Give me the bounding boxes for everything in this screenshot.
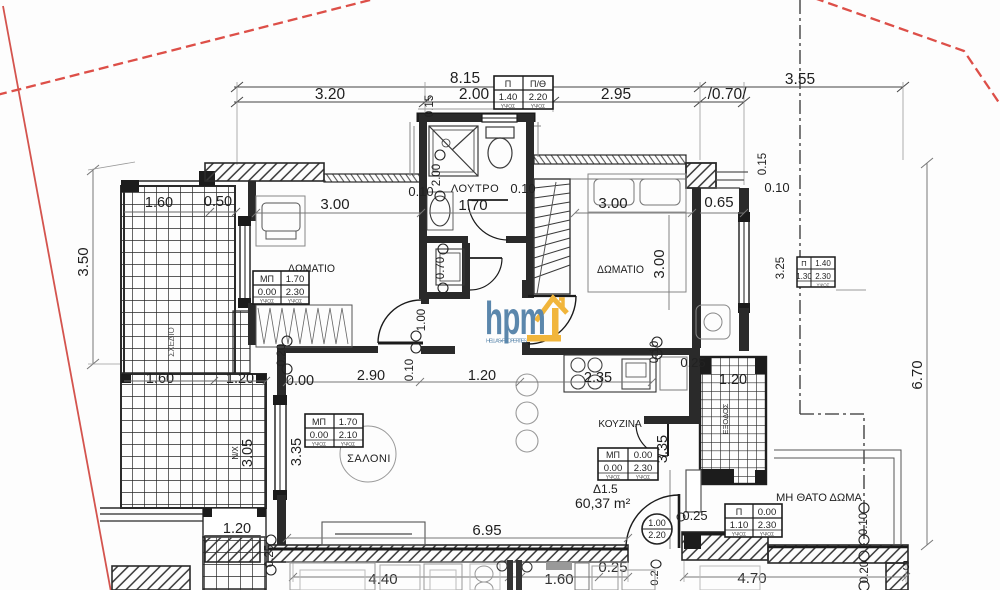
svg-text:1.10: 1.10 — [730, 520, 749, 531]
svg-text:Δ1.5: Δ1.5 — [593, 482, 618, 496]
svg-text:2.95: 2.95 — [601, 86, 631, 103]
svg-text:ΥΨΟΣ: ΥΨΟΣ — [312, 442, 327, 448]
svg-text:ΜП: ΜП — [606, 450, 620, 460]
svg-text:1.20: 1.20 — [226, 371, 254, 387]
svg-text:ΚΟΥΖΙΝΑ: ΚΟΥΖΙΝΑ — [598, 419, 642, 430]
svg-text:0.10: 0.10 — [649, 341, 661, 363]
svg-text:2.00: 2.00 — [431, 164, 443, 186]
svg-text:2.30: 2.30 — [286, 287, 305, 298]
svg-text:Ν/Χ: Ν/Χ — [231, 446, 240, 460]
svg-text:0.10: 0.10 — [764, 180, 789, 195]
svg-text:1.00: 1.00 — [416, 309, 428, 331]
svg-text:ΛΟΥΤΡΟ: ΛΟΥΤΡΟ — [451, 183, 499, 195]
svg-text:0.65: 0.65 — [704, 194, 733, 211]
svg-text:2.30: 2.30 — [634, 463, 653, 474]
svg-text:П: П — [736, 507, 742, 517]
svg-text:ΜП: ΜП — [260, 274, 274, 284]
svg-text:/0.70/: /0.70/ — [708, 86, 747, 103]
svg-text:hpm: hpm — [485, 294, 545, 345]
svg-text:0.00: 0.00 — [604, 463, 623, 474]
svg-text:П: П — [505, 79, 511, 89]
svg-text:2.90: 2.90 — [357, 368, 385, 384]
svg-text:3.55: 3.55 — [785, 71, 815, 88]
svg-text:ΥΨΟΣ: ΥΨΟΣ — [606, 475, 621, 481]
svg-text:3.00: 3.00 — [320, 196, 349, 213]
svg-text:1.60: 1.60 — [544, 571, 573, 588]
svg-text:ΜΗ ΘΑΤΟ ΔΩΜΑ: ΜΗ ΘΑΤΟ ΔΩΜΑ — [776, 492, 863, 504]
svg-text:2.00: 2.00 — [459, 86, 490, 103]
svg-text:ΔΩΜΑΤΙΟ: ΔΩΜΑΤΙΟ — [597, 264, 644, 276]
svg-text:0.10: 0.10 — [404, 359, 416, 381]
svg-text:1.70: 1.70 — [458, 197, 487, 214]
svg-text:6.70: 6.70 — [909, 360, 926, 389]
svg-text:0.15: 0.15 — [757, 153, 769, 175]
svg-text:0.10: 0.10 — [858, 513, 870, 535]
svg-text:6.95: 6.95 — [472, 522, 501, 539]
svg-text:2.30: 2.30 — [758, 520, 777, 531]
svg-text:ΥΨΟΣ: ΥΨΟΣ — [732, 532, 747, 538]
svg-text:3.35: 3.35 — [289, 438, 305, 466]
svg-text:2.20: 2.20 — [648, 530, 666, 540]
svg-text:8.15: 8.15 — [450, 70, 480, 87]
svg-text:0.10: 0.10 — [510, 181, 535, 196]
svg-text:0.25: 0.25 — [682, 508, 707, 523]
svg-text:1.20: 1.20 — [468, 368, 496, 384]
svg-text:0.00: 0.00 — [258, 287, 277, 298]
svg-text:ΥΨΟΣ: ΥΨΟΣ — [816, 283, 829, 288]
svg-text:3.25: 3.25 — [775, 257, 787, 279]
svg-text:0.15: 0.15 — [424, 95, 436, 117]
svg-text:3.50: 3.50 — [75, 247, 92, 276]
svg-text:ΣΑΛΟΝΙ: ΣΑΛΟΝΙ — [347, 453, 391, 465]
svg-text:3.00: 3.00 — [598, 195, 627, 212]
svg-text:0.00: 0.00 — [286, 373, 314, 389]
svg-text:1.30: 1.30 — [796, 272, 812, 281]
svg-text:0.50: 0.50 — [204, 194, 232, 210]
svg-text:3.00: 3.00 — [651, 249, 668, 278]
svg-text:2.35: 2.35 — [584, 370, 612, 386]
svg-text:1.70: 1.70 — [286, 274, 305, 285]
svg-text:3.20: 3.20 — [315, 86, 346, 103]
svg-text:0.25: 0.25 — [680, 355, 705, 370]
svg-text:1.40: 1.40 — [815, 259, 831, 268]
svg-text:ΥΨΟΣ: ΥΨΟΣ — [288, 299, 303, 305]
svg-text:ΕΞΟΔΟΣ: ΕΞΟΔΟΣ — [721, 403, 730, 434]
svg-text:4.40: 4.40 — [368, 571, 397, 588]
svg-text:0.70: 0.70 — [435, 257, 447, 279]
svg-text:1.60: 1.60 — [146, 371, 174, 387]
svg-text:1.70: 1.70 — [339, 417, 358, 428]
svg-text:0.00: 0.00 — [310, 430, 329, 441]
svg-text:2.30: 2.30 — [815, 272, 831, 281]
svg-text:ΥΨΟΣ: ΥΨΟΣ — [501, 104, 516, 110]
svg-text:0.10: 0.10 — [408, 184, 433, 199]
svg-text:60,37 m²: 60,37 m² — [575, 495, 631, 511]
svg-text:2.20: 2.20 — [529, 92, 548, 103]
svg-text:П/Ө: П/Ө — [530, 79, 546, 89]
svg-text:ΜП: ΜП — [312, 417, 326, 427]
svg-text:0.00: 0.00 — [634, 450, 653, 461]
svg-text:0.00: 0.00 — [758, 507, 777, 518]
svg-text:0.20: 0.20 — [859, 561, 871, 583]
svg-text:ΥΨΟΣ: ΥΨΟΣ — [341, 442, 356, 448]
svg-text:0.20: 0.20 — [276, 344, 288, 366]
svg-text:1.20: 1.20 — [719, 372, 747, 388]
svg-text:1.40: 1.40 — [499, 92, 518, 103]
svg-text:1.60: 1.60 — [145, 195, 173, 211]
svg-text:0.25: 0.25 — [264, 545, 276, 567]
svg-text:П: П — [801, 259, 806, 268]
svg-text:ΥΨΟΣ: ΥΨΟΣ — [636, 475, 651, 481]
svg-text:ΥΨΟΣ: ΥΨΟΣ — [531, 104, 546, 110]
svg-text:1.00: 1.00 — [648, 518, 666, 528]
svg-text:3.05: 3.05 — [240, 439, 256, 467]
svg-text:ΣΧΕΔΙΟ: ΣΧΕΔΙΟ — [167, 327, 176, 356]
svg-text:HELLAS ▪ PROPERTIES: HELLAS ▪ PROPERTIES — [486, 339, 527, 345]
svg-text:ΥΨΟΣ: ΥΨΟΣ — [260, 299, 275, 305]
svg-text:ΥΨΟΣ: ΥΨΟΣ — [760, 532, 775, 538]
svg-text:2.10: 2.10 — [339, 430, 358, 441]
svg-text:4.70: 4.70 — [737, 570, 766, 587]
svg-text:1.20: 1.20 — [223, 521, 251, 537]
